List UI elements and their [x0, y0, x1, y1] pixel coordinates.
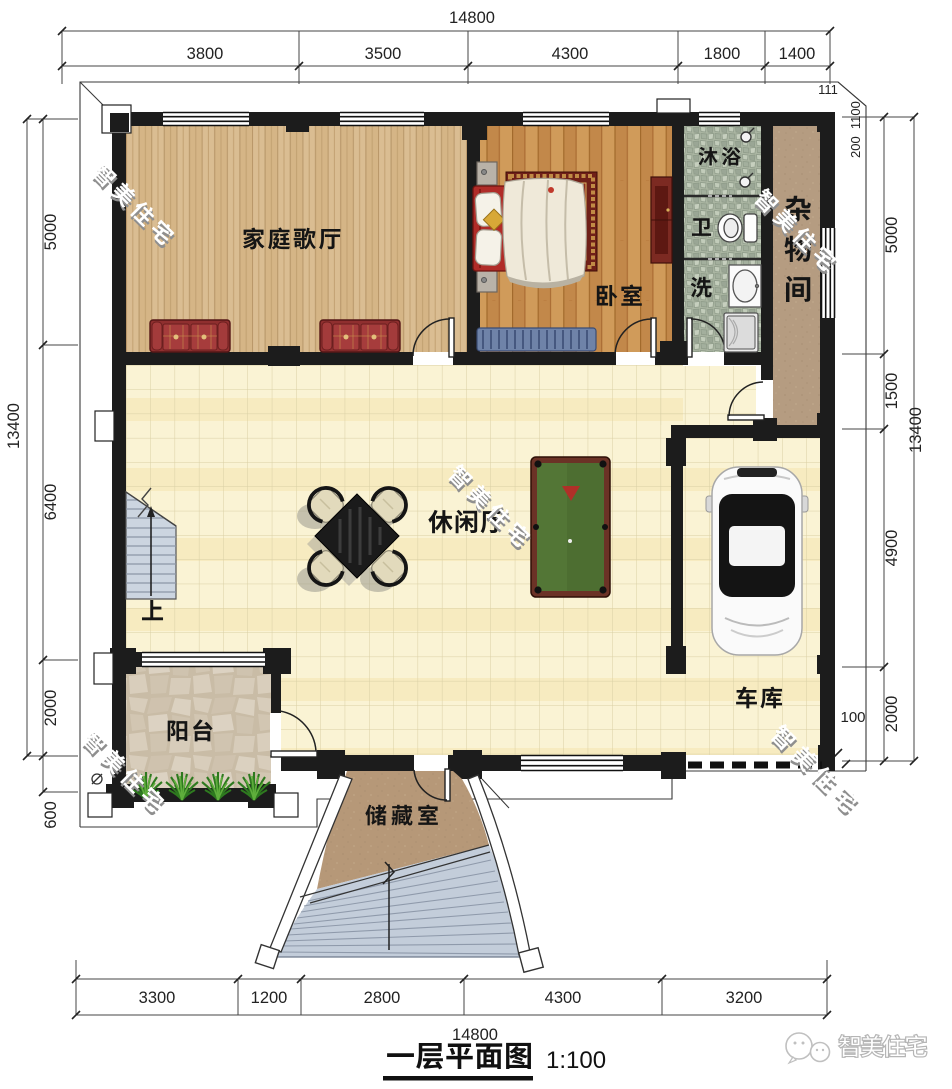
svg-text:2000: 2000 — [42, 690, 60, 727]
svg-text:1400: 1400 — [779, 45, 816, 63]
svg-text:13400: 13400 — [5, 403, 23, 449]
svg-text:14800: 14800 — [452, 1026, 498, 1044]
svg-text:4300: 4300 — [552, 45, 589, 63]
svg-text:4300: 4300 — [545, 989, 582, 1007]
svg-text:4900: 4900 — [883, 530, 901, 567]
svg-text:100: 100 — [840, 709, 865, 726]
svg-text:2000: 2000 — [883, 696, 901, 733]
svg-text:1500: 1500 — [883, 373, 901, 410]
svg-text:1800: 1800 — [704, 45, 741, 63]
svg-text:3200: 3200 — [726, 989, 763, 1007]
svg-text:6400: 6400 — [42, 484, 60, 521]
svg-text:200 1100: 200 1100 — [848, 101, 863, 158]
svg-text:5000: 5000 — [42, 214, 60, 251]
svg-text:5000: 5000 — [883, 217, 901, 254]
svg-text:1:100: 1:100 — [546, 1047, 606, 1074]
svg-text:3500: 3500 — [365, 45, 402, 63]
svg-text:3800: 3800 — [187, 45, 224, 63]
svg-text:600: 600 — [42, 801, 60, 829]
svg-text:111: 111 — [818, 82, 838, 97]
svg-text:2800: 2800 — [364, 989, 401, 1007]
svg-text:13400: 13400 — [907, 407, 925, 453]
svg-text:1200: 1200 — [251, 989, 288, 1007]
svg-text:3300: 3300 — [139, 989, 176, 1007]
svg-text:14800: 14800 — [449, 9, 495, 27]
